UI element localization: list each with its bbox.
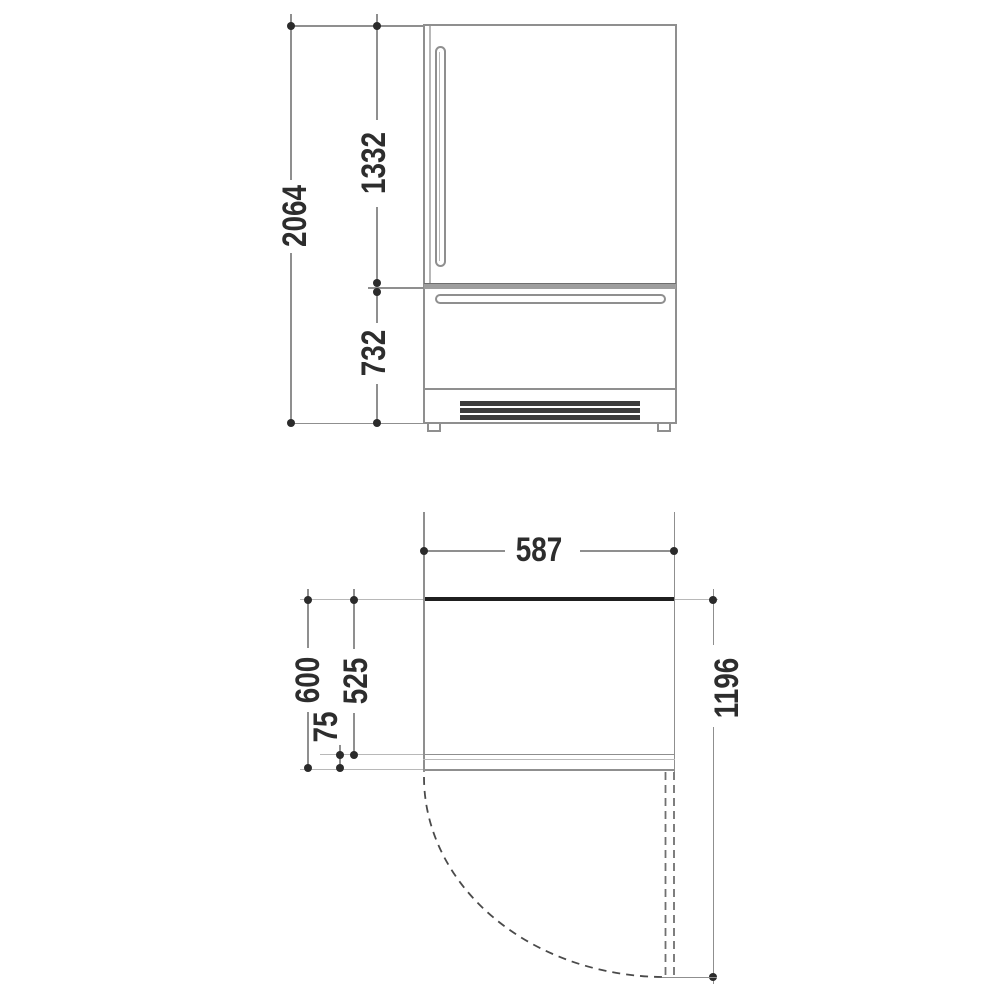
dim-line-587-left: [423, 550, 505, 552]
door-swing-overlay: [0, 0, 1000, 1000]
upper-door-handle-inner-line: [439, 52, 440, 261]
plan-right-edge: [674, 598, 676, 772]
dim-line-1332-lower: [376, 207, 378, 283]
dim-line-587-right: [580, 550, 674, 552]
vent-grille-bar: [460, 415, 640, 420]
plan-cabinet-front-line: [423, 754, 675, 756]
dim-dot: [350, 596, 358, 604]
dim-dot: [373, 288, 381, 296]
dim-dot: [373, 279, 381, 287]
dim-dot: [304, 596, 312, 604]
technical-drawing: 2064 1332 732 587: [0, 0, 1000, 1000]
plan-back-edge-thick: [423, 597, 675, 601]
cabinet-bottom-edge: [423, 422, 677, 424]
dim-label-upper-door-height: 1332: [357, 130, 391, 197]
dim-dot: [287, 22, 295, 30]
dim-dot: [336, 764, 344, 772]
extension-door-front: [300, 769, 423, 770]
dim-dot: [670, 547, 678, 555]
cabinet-left-edge: [423, 24, 425, 424]
dim-dot: [350, 751, 358, 759]
extension-line-bottom: [290, 423, 424, 425]
left-foot: [427, 424, 441, 432]
dim-line-732-upper: [376, 292, 378, 323]
dim-dot: [336, 751, 344, 759]
cabinet-right-edge: [675, 24, 677, 424]
dim-dot: [304, 764, 312, 772]
ext-line-587-right: [674, 512, 676, 598]
dim-label-lower-section-height: 732: [357, 327, 391, 378]
dim-label-open-door-clearance: 1196: [710, 655, 744, 720]
dim-label-total-depth: 600: [291, 654, 325, 705]
upper-door-edge-line: [429, 26, 431, 284]
cabinet-top-edge: [423, 24, 677, 26]
dim-line-732-lower: [376, 384, 378, 423]
extension-open-door-bottom: [662, 977, 717, 979]
drawer-bottom-line: [423, 388, 677, 390]
dim-label-overall-height: 2064: [278, 183, 312, 250]
plan-door-front-line: [423, 769, 675, 771]
plan-left-edge: [423, 598, 425, 772]
dim-dot: [373, 22, 381, 30]
upper-door-handle: [435, 46, 446, 267]
extension-back-left: [300, 599, 423, 600]
dim-dot: [420, 547, 428, 555]
dim-dot: [709, 596, 717, 604]
vent-grille-bar: [460, 408, 640, 413]
plan-door-back-line: [423, 759, 675, 760]
door-swing-arc: [424, 777, 662, 977]
extension-line-top: [291, 25, 425, 27]
ext-line-587-left: [423, 512, 425, 598]
dim-dot: [373, 419, 381, 427]
freezer-drawer-handle: [435, 294, 666, 304]
dim-dot: [287, 419, 295, 427]
dim-label-width: 587: [513, 533, 564, 567]
dim-line-2064-lower: [290, 253, 292, 423]
dim-label-door-thickness: 75: [309, 709, 343, 745]
vent-grille-bar: [460, 401, 640, 406]
right-foot: [657, 424, 671, 432]
dim-line-2064-upper: [290, 14, 292, 180]
dim-line-1196-lower: [713, 727, 715, 984]
door-divider-bar: [424, 283, 676, 289]
dim-line-525-lower: [353, 713, 355, 756]
dim-label-body-depth: 525: [339, 655, 373, 706]
